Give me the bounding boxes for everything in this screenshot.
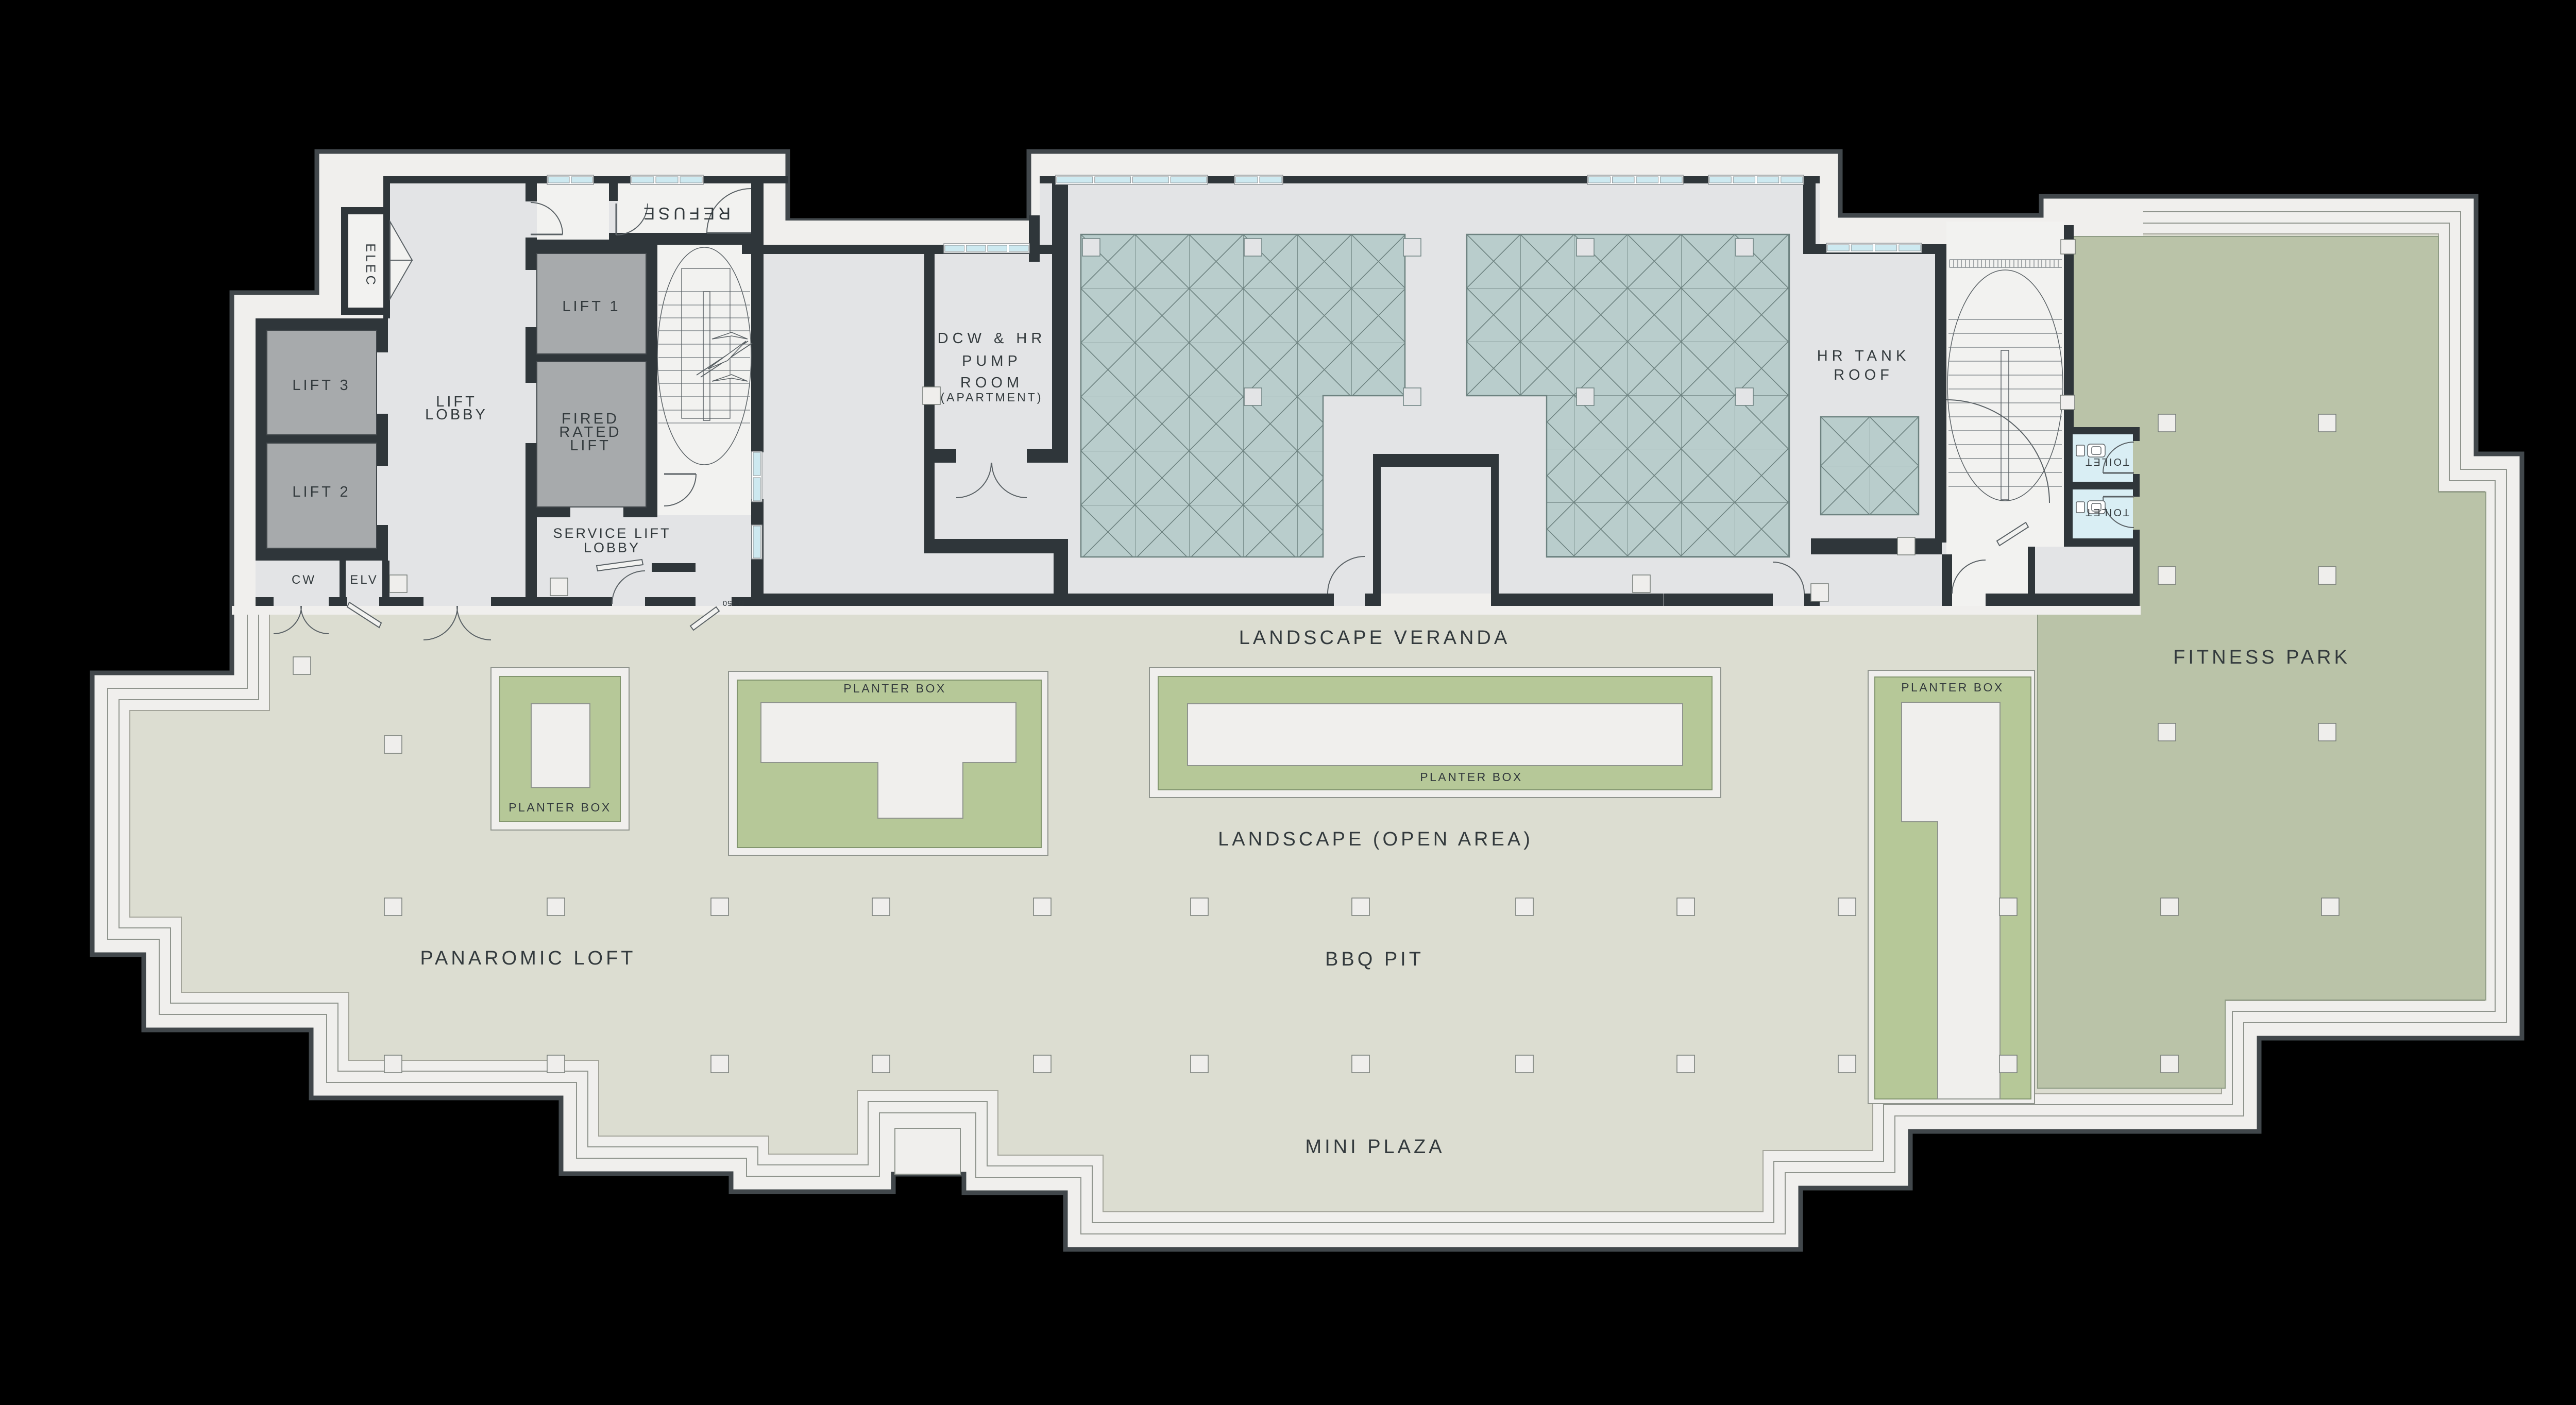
svg-text:ROOM: ROOM: [960, 375, 1023, 391]
svg-text:FITNESS PARK: FITNESS PARK: [2173, 647, 2350, 668]
svg-text:REFUSE: REFUSE: [640, 204, 731, 223]
svg-text:PLANTER BOX: PLANTER BOX: [843, 682, 946, 695]
svg-text:TOILET: TOILET: [2084, 456, 2129, 467]
svg-text:TOILET: TOILET: [2084, 506, 2129, 518]
svg-text:PLANTER BOX: PLANTER BOX: [1901, 681, 2004, 694]
svg-text:SERVICE LIFT: SERVICE LIFT: [553, 526, 671, 541]
svg-text:ELEC: ELEC: [363, 243, 378, 287]
svg-text:LANDSCAPE VERANDA: LANDSCAPE VERANDA: [1239, 627, 1510, 649]
svg-text:LANDSCAPE (OPEN AREA): LANDSCAPE (OPEN AREA): [1218, 828, 1533, 850]
svg-text:(APARTMENT): (APARTMENT): [940, 391, 1043, 404]
svg-text:DCW & HR: DCW & HR: [938, 330, 1046, 347]
svg-text:PUMP: PUMP: [962, 353, 1022, 369]
svg-text:DN50: DN50: [722, 599, 744, 607]
svg-text:HR TANK: HR TANK: [1817, 348, 1910, 364]
svg-text:LIFT: LIFT: [570, 437, 611, 454]
svg-text:PANAROMIC LOFT: PANAROMIC LOFT: [420, 947, 636, 969]
svg-text:LIFT 2: LIFT 2: [292, 484, 350, 500]
svg-text:PLANTER BOX: PLANTER BOX: [509, 801, 612, 814]
svg-text:LOBBY: LOBBY: [425, 407, 488, 423]
svg-text:LOBBY: LOBBY: [584, 540, 640, 555]
svg-text:MINI PLAZA: MINI PLAZA: [1305, 1136, 1445, 1158]
svg-text:ROOF: ROOF: [1834, 367, 1893, 383]
svg-text:CW: CW: [292, 573, 316, 587]
svg-text:ELV: ELV: [350, 573, 379, 587]
svg-text:LIFT 3: LIFT 3: [292, 377, 350, 394]
svg-text:PLANTER BOX: PLANTER BOX: [1420, 770, 1523, 784]
svg-text:LIFT 1: LIFT 1: [562, 298, 620, 315]
svg-text:BBQ PIT: BBQ PIT: [1325, 949, 1424, 970]
